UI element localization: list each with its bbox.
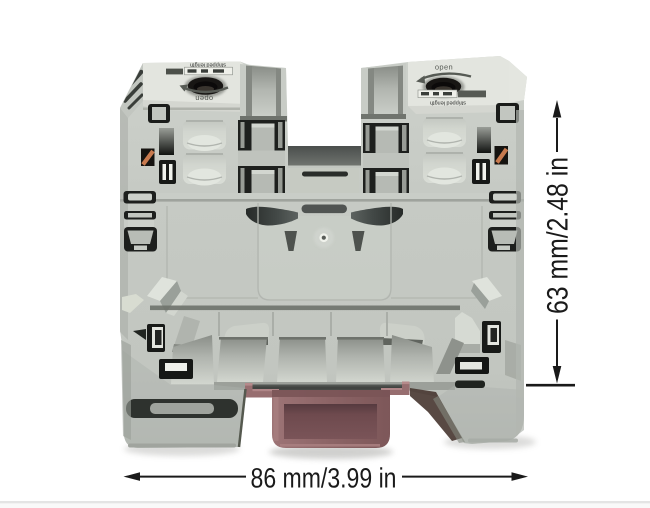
svg-text:86 mm/3.99 in: 86 mm/3.99 in <box>251 463 397 494</box>
svg-text:open: open <box>435 63 453 72</box>
svg-text:63 mm/2.48 in: 63 mm/2.48 in <box>542 157 575 314</box>
svg-text:stripped length: stripped length <box>430 100 466 106</box>
svg-text:open: open <box>195 94 213 103</box>
svg-text:stripped length: stripped length <box>190 62 226 68</box>
